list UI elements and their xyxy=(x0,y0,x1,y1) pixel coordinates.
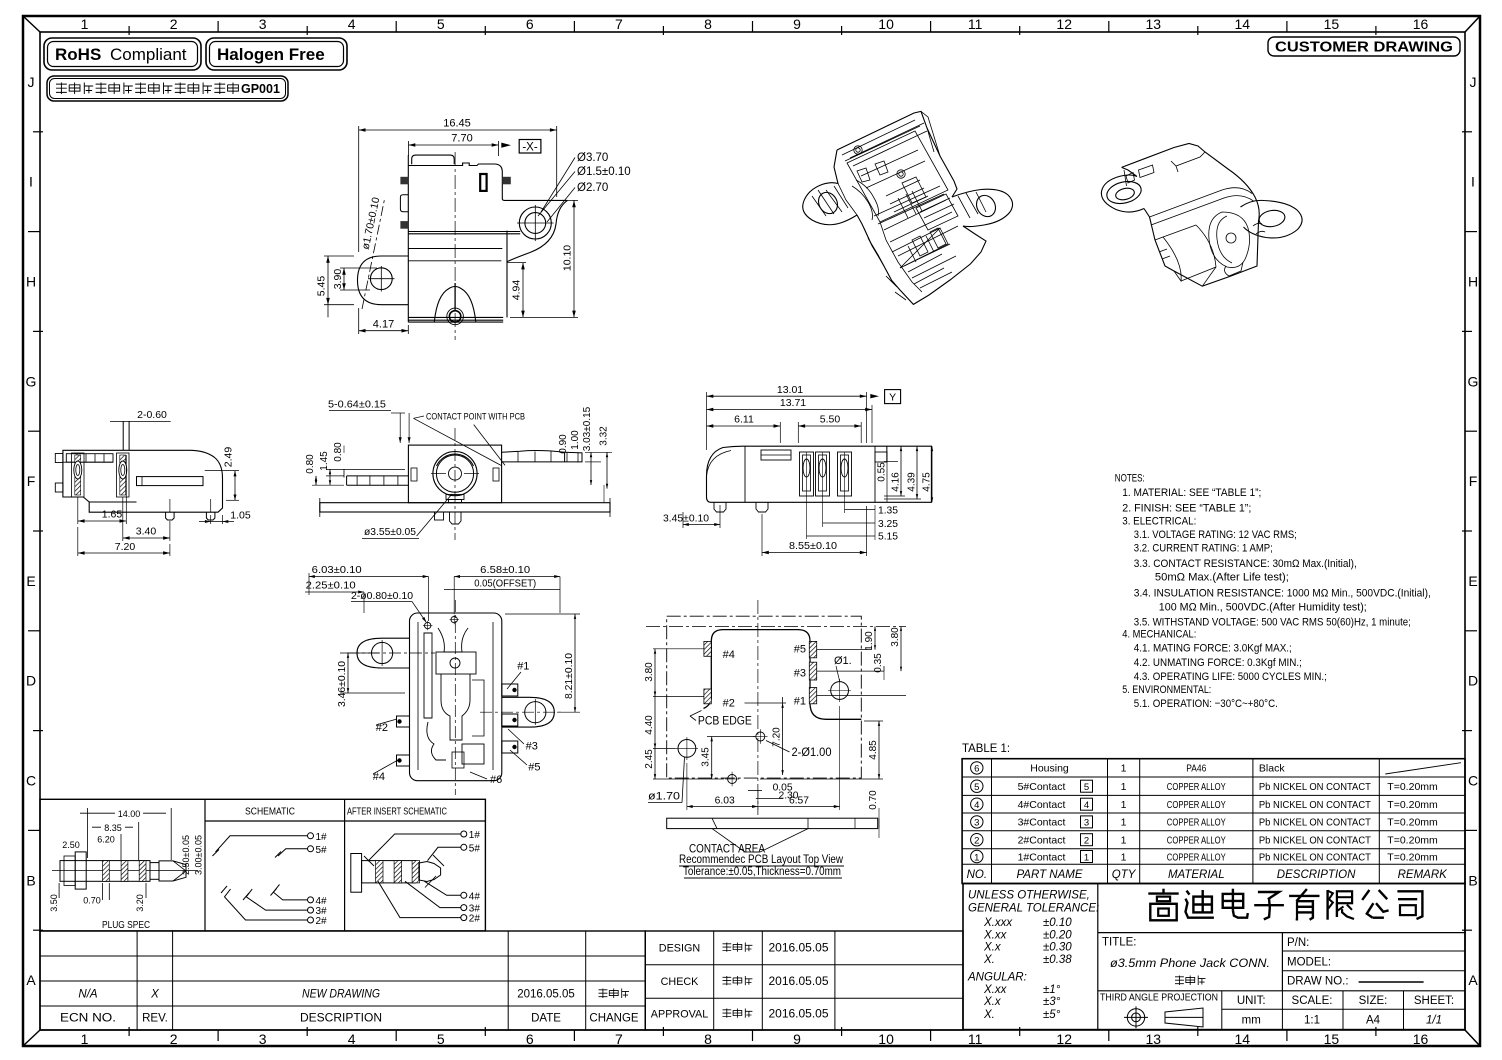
svg-text:#1: #1 xyxy=(517,661,529,673)
svg-text:X.: X. xyxy=(983,1009,995,1021)
svg-text:1: 1 xyxy=(1121,781,1127,793)
svg-text:Housing: Housing xyxy=(1030,763,1069,775)
svg-text:COPPER ALLOY: COPPER ALLOY xyxy=(1167,835,1226,847)
svg-text:4#: 4# xyxy=(469,891,481,902)
svg-text:5#Contact: 5#Contact xyxy=(1018,781,1066,793)
svg-text:9: 9 xyxy=(793,1031,801,1047)
svg-text:SCALE:: SCALE: xyxy=(1292,995,1333,1007)
svg-text:1.45: 1.45 xyxy=(319,451,330,471)
svg-text:8.35: 8.35 xyxy=(104,823,122,833)
svg-text:1. MATERIAL: SEE “TABLE 1”;: 1. MATERIAL: SEE “TABLE 1”; xyxy=(1122,487,1261,499)
svg-text:J: J xyxy=(1470,74,1477,90)
svg-text:Ø2.70: Ø2.70 xyxy=(577,182,608,194)
svg-text:SIZE:: SIZE: xyxy=(1359,995,1388,1007)
svg-text:2. FINISH: SEE “TABLE 1”;: 2. FINISH: SEE “TABLE 1”; xyxy=(1122,503,1251,515)
svg-text:X.xx: X.xx xyxy=(983,930,1008,942)
svg-text:±0.10: ±0.10 xyxy=(1043,917,1072,929)
svg-text:CHECK: CHECK xyxy=(661,976,700,988)
svg-text:Ø3.70: Ø3.70 xyxy=(577,152,608,164)
svg-text:3.80: 3.80 xyxy=(890,627,901,647)
svg-text:1.90: 1.90 xyxy=(864,631,875,651)
svg-text:B: B xyxy=(1468,872,1477,888)
svg-text:3: 3 xyxy=(974,818,979,829)
svg-text:UNIT:: UNIT: xyxy=(1237,995,1266,1007)
svg-text:2#: 2# xyxy=(469,914,481,925)
svg-text:1#: 1# xyxy=(316,832,328,843)
svg-text:6.58±0.10: 6.58±0.10 xyxy=(480,565,530,576)
svg-text:8: 8 xyxy=(704,1031,712,1047)
svg-text:COPPER ALLOY: COPPER ALLOY xyxy=(1167,781,1226,793)
svg-text:C: C xyxy=(1468,773,1478,789)
svg-text:4: 4 xyxy=(1084,800,1089,811)
svg-text:4.1. MATING FORCE: 3.0Kgf MAX: 4.1. MATING FORCE: 3.0Kgf MAX.; xyxy=(1134,642,1292,654)
svg-text:7: 7 xyxy=(615,1031,623,1047)
svg-text:Compliant: Compliant xyxy=(110,45,187,64)
svg-text:GENERAL TOLERANCE:: GENERAL TOLERANCE: xyxy=(968,903,1099,915)
svg-text:3.25: 3.25 xyxy=(878,519,898,530)
svg-text:1:1: 1:1 xyxy=(1304,1015,1320,1027)
svg-text:3.45±0.10: 3.45±0.10 xyxy=(663,513,709,524)
svg-text:T=0.20mm: T=0.20mm xyxy=(1387,817,1438,829)
svg-text:3.80: 3.80 xyxy=(644,662,655,682)
svg-text:NO.: NO. xyxy=(967,869,987,881)
svg-text:RoHS: RoHS xyxy=(55,45,101,64)
svg-text:4.40: 4.40 xyxy=(644,715,655,735)
svg-text:Pb NICKEL ON CONTACT: Pb NICKEL ON CONTACT xyxy=(1259,817,1372,829)
svg-text:T=0.20mm: T=0.20mm xyxy=(1387,781,1438,793)
svg-text:±0.38: ±0.38 xyxy=(1043,954,1072,966)
svg-text:2.50±0.05: 2.50±0.05 xyxy=(181,835,191,875)
svg-text:2.50: 2.50 xyxy=(62,840,80,850)
svg-text:13: 13 xyxy=(1146,1031,1162,1047)
svg-text:F: F xyxy=(27,473,36,489)
svg-text:CHANGE: CHANGE xyxy=(589,1013,639,1025)
svg-text:5: 5 xyxy=(437,1031,445,1047)
svg-text:5: 5 xyxy=(1084,782,1089,793)
svg-text:PA46: PA46 xyxy=(1186,763,1206,775)
svg-text:G: G xyxy=(26,373,37,389)
svg-text:3.3. CONTACT RESISTANCE: 30mΩ: 3.3. CONTACT RESISTANCE: 30mΩ Max.(Initi… xyxy=(1134,558,1357,570)
svg-text:0.35: 0.35 xyxy=(873,653,884,673)
svg-text:15: 15 xyxy=(1324,1031,1340,1047)
svg-text:DESCRIPTION: DESCRIPTION xyxy=(300,1013,382,1025)
svg-text:G: G xyxy=(1468,373,1479,389)
svg-text:1: 1 xyxy=(1121,851,1127,863)
svg-text:X.x: X.x xyxy=(983,942,1002,954)
svg-text:±3°: ±3° xyxy=(1043,996,1061,1008)
svg-text:2016.05.05: 2016.05.05 xyxy=(768,974,828,988)
svg-text:TITLE:: TITLE: xyxy=(1102,937,1137,949)
svg-text:2: 2 xyxy=(170,1031,178,1047)
svg-text:T=0.20mm: T=0.20mm xyxy=(1387,835,1438,847)
svg-text:4: 4 xyxy=(348,16,356,32)
svg-text:13.71: 13.71 xyxy=(780,397,806,409)
svg-text:APPROVAL: APPROVAL xyxy=(651,1009,708,1021)
svg-text:H: H xyxy=(1468,274,1478,290)
svg-text:3.90: 3.90 xyxy=(332,269,344,290)
svg-text:12: 12 xyxy=(1056,16,1072,32)
svg-text:0.80: 0.80 xyxy=(333,442,344,462)
svg-text:7.70: 7.70 xyxy=(451,133,472,145)
svg-text:Ø1.: Ø1. xyxy=(834,655,852,667)
svg-text:REMARK: REMARK xyxy=(1398,869,1449,881)
svg-text:6: 6 xyxy=(526,1031,534,1047)
svg-text:14.00: 14.00 xyxy=(118,809,141,819)
svg-text:SHEET:: SHEET: xyxy=(1414,995,1454,1007)
svg-text:4.3. OPERATING LIFE: 5000 CYC: 4.3. OPERATING LIFE: 5000 CYCLES MIN.; xyxy=(1134,671,1327,683)
svg-text:3.00±0.05: 3.00±0.05 xyxy=(194,835,204,875)
svg-text:DRAW NO.:: DRAW NO.: xyxy=(1287,976,1349,988)
svg-text:1: 1 xyxy=(1121,799,1127,811)
svg-text:3: 3 xyxy=(259,16,267,32)
svg-text:7.20: 7.20 xyxy=(771,727,782,747)
svg-text:2: 2 xyxy=(1084,836,1089,847)
svg-text:16.45: 16.45 xyxy=(443,118,471,130)
svg-text:X.xx: X.xx xyxy=(983,984,1008,996)
svg-text:1: 1 xyxy=(1084,852,1089,863)
svg-text:2016.05.05: 2016.05.05 xyxy=(517,989,575,1001)
svg-text:ø1.70: ø1.70 xyxy=(648,791,680,803)
svg-text:THIRD ANGLE PROJECTION: THIRD ANGLE PROJECTION xyxy=(1100,993,1218,1004)
svg-text:UNLESS OTHERWISE,: UNLESS OTHERWISE, xyxy=(968,890,1090,902)
svg-text:14: 14 xyxy=(1235,16,1251,32)
svg-text:7: 7 xyxy=(615,16,623,32)
svg-text:4.2. UNMATING FORCE: 0.3Kgf M: 4.2. UNMATING FORCE: 0.3Kgf MIN.; xyxy=(1134,657,1302,669)
svg-text:7.20: 7.20 xyxy=(115,541,136,553)
svg-text:ECN NO.: ECN NO. xyxy=(60,1013,116,1025)
svg-text:5: 5 xyxy=(437,16,445,32)
svg-text:#1: #1 xyxy=(794,695,806,707)
svg-text:10: 10 xyxy=(878,1031,894,1047)
svg-text:6.03: 6.03 xyxy=(715,795,735,806)
svg-text:ø3.5mm Phone Jack CONN.: ø3.5mm Phone Jack CONN. xyxy=(1110,958,1270,970)
svg-text:4: 4 xyxy=(974,800,979,811)
svg-text:#5: #5 xyxy=(528,762,540,774)
svg-text:11: 11 xyxy=(968,16,983,32)
svg-text:3: 3 xyxy=(259,1031,267,1047)
svg-text:10: 10 xyxy=(878,16,894,32)
svg-text:4.85: 4.85 xyxy=(868,740,879,760)
svg-text:8: 8 xyxy=(704,16,712,32)
svg-text:X.x: X.x xyxy=(983,996,1002,1008)
svg-text:0.90: 0.90 xyxy=(558,434,569,454)
svg-text:1: 1 xyxy=(81,1031,89,1047)
svg-text:Pb NICKEL ON CONTACT: Pb NICKEL ON CONTACT xyxy=(1259,799,1372,811)
svg-text:Pb NICKEL ON CONTACT: Pb NICKEL ON CONTACT xyxy=(1259,781,1372,793)
svg-text:3#Contact: 3#Contact xyxy=(1018,817,1066,829)
svg-text:-X-: -X- xyxy=(522,141,538,153)
svg-text:6.11: 6.11 xyxy=(734,414,754,426)
svg-text:Black: Black xyxy=(1259,763,1285,775)
svg-text:I: I xyxy=(29,174,33,190)
svg-text:9: 9 xyxy=(793,16,801,32)
svg-text:4.94: 4.94 xyxy=(511,280,523,301)
svg-text:E: E xyxy=(1468,573,1477,589)
svg-text:8.55±0.10: 8.55±0.10 xyxy=(789,541,837,552)
svg-text:X: X xyxy=(150,989,160,1001)
svg-text:QTY: QTY xyxy=(1112,869,1137,881)
svg-text:1: 1 xyxy=(1121,817,1127,829)
svg-text:6: 6 xyxy=(974,764,979,775)
svg-text:6: 6 xyxy=(526,16,534,32)
svg-text:8.21±0.10: 8.21±0.10 xyxy=(564,653,575,699)
svg-text:14: 14 xyxy=(1235,1031,1251,1047)
svg-text:4: 4 xyxy=(348,1031,356,1047)
svg-text:2.49: 2.49 xyxy=(223,447,235,468)
svg-text:NOTES:: NOTES: xyxy=(1115,473,1145,485)
svg-text:2.25±0.10: 2.25±0.10 xyxy=(306,581,356,592)
svg-text:MODEL:: MODEL: xyxy=(1287,957,1331,969)
svg-text:4.75: 4.75 xyxy=(922,472,933,492)
svg-text:3.2. CURRENT RATING: 1 AMP;: 3.2. CURRENT RATING: 1 AMP; xyxy=(1134,543,1273,555)
svg-text:1/1: 1/1 xyxy=(1426,1015,1442,1027)
svg-text:Ø1.5±0.10: Ø1.5±0.10 xyxy=(577,166,631,178)
svg-text:P/N:: P/N: xyxy=(1287,937,1309,949)
svg-text:2#: 2# xyxy=(316,916,328,927)
svg-text:±1°: ±1° xyxy=(1043,984,1061,996)
svg-text:DESIGN: DESIGN xyxy=(659,943,700,955)
svg-text:A4: A4 xyxy=(1366,1015,1381,1027)
svg-text:3.50: 3.50 xyxy=(49,894,59,912)
svg-text:5.15: 5.15 xyxy=(878,532,898,543)
svg-text:1: 1 xyxy=(1121,763,1127,775)
svg-text:COPPER ALLOY: COPPER ALLOY xyxy=(1167,817,1226,829)
svg-text:13.01: 13.01 xyxy=(777,384,803,396)
svg-text:COPPER ALLOY: COPPER ALLOY xyxy=(1167,851,1226,863)
svg-text:16: 16 xyxy=(1413,16,1429,32)
svg-text:Pb NICKEL ON CONTACT: Pb NICKEL ON CONTACT xyxy=(1259,835,1372,847)
svg-text:I: I xyxy=(1471,174,1475,190)
svg-text:J: J xyxy=(28,74,35,90)
svg-text:2016.05.05: 2016.05.05 xyxy=(768,1007,828,1021)
svg-text:X.: X. xyxy=(983,954,995,966)
svg-text:1: 1 xyxy=(1121,835,1127,847)
svg-text:5.1. OPERATION: −30°C~+80°C.: 5.1. OPERATION: −30°C~+80°C. xyxy=(1134,698,1278,710)
svg-text:1: 1 xyxy=(974,852,979,863)
svg-text:E: E xyxy=(26,573,35,589)
svg-text:6.57: 6.57 xyxy=(789,795,809,806)
svg-text:3. ELECTRICAL:: 3. ELECTRICAL: xyxy=(1122,516,1196,528)
svg-text:D: D xyxy=(1468,673,1478,689)
svg-text:4.17: 4.17 xyxy=(373,319,394,331)
svg-text:TABLE 1:: TABLE 1: xyxy=(962,741,1010,755)
svg-text:0.05(OFFSET): 0.05(OFFSET) xyxy=(474,578,536,589)
svg-text:3.46±0.10: 3.46±0.10 xyxy=(337,661,348,707)
svg-text:DESCRIPTION: DESCRIPTION xyxy=(1277,869,1356,881)
svg-text:Pb NICKEL ON CONTACT: Pb NICKEL ON CONTACT xyxy=(1259,851,1372,863)
svg-text:5.45: 5.45 xyxy=(316,276,328,297)
svg-text:6.03±0.10: 6.03±0.10 xyxy=(312,565,362,576)
svg-text:COPPER ALLOY: COPPER ALLOY xyxy=(1167,799,1226,811)
svg-text:2#Contact: 2#Contact xyxy=(1018,835,1066,847)
svg-text:X.xxx: X.xxx xyxy=(983,917,1013,929)
svg-text:GP001: GP001 xyxy=(241,82,280,96)
svg-text:3.32: 3.32 xyxy=(599,426,610,446)
svg-text:±5°: ±5° xyxy=(1043,1009,1061,1021)
svg-text:ANGULAR:: ANGULAR: xyxy=(967,971,1027,983)
svg-text:16: 16 xyxy=(1413,1031,1429,1047)
svg-text:#3: #3 xyxy=(526,741,538,753)
svg-text:3.20: 3.20 xyxy=(135,894,145,912)
svg-text:2016.05.05: 2016.05.05 xyxy=(768,941,828,955)
svg-text:1.65: 1.65 xyxy=(102,509,123,521)
svg-text:11: 11 xyxy=(968,1031,983,1047)
svg-text:1.00: 1.00 xyxy=(570,430,581,450)
svg-text:B: B xyxy=(26,872,35,888)
svg-text:D: D xyxy=(26,673,36,689)
svg-text:REV.: REV. xyxy=(142,1013,168,1025)
svg-text:2: 2 xyxy=(974,836,979,847)
svg-text:1.05: 1.05 xyxy=(230,509,251,521)
svg-text:#6: #6 xyxy=(490,774,502,786)
svg-text:N/A: N/A xyxy=(78,989,98,1001)
svg-text:1: 1 xyxy=(81,16,89,32)
svg-text:0.70: 0.70 xyxy=(83,896,101,906)
svg-text:5.50: 5.50 xyxy=(820,414,841,426)
svg-text:100 MΩ Min., 500VDC.(After Hum: 100 MΩ Min., 500VDC.(After Humidity test… xyxy=(1159,602,1367,614)
svg-text:0.70: 0.70 xyxy=(868,790,879,810)
svg-text:12: 12 xyxy=(1056,1031,1072,1047)
svg-text:T=0.20mm: T=0.20mm xyxy=(1387,851,1438,863)
svg-text:13: 13 xyxy=(1146,16,1162,32)
svg-text:#2: #2 xyxy=(376,722,388,734)
svg-text:±0.30: ±0.30 xyxy=(1043,942,1072,954)
svg-text:50mΩ Max.(After Life test);: 50mΩ Max.(After Life test); xyxy=(1155,571,1289,583)
svg-text:0.55: 0.55 xyxy=(877,462,888,482)
svg-text:AFTER INSERT SCHEMATIC: AFTER INSERT SCHEMATIC xyxy=(347,807,447,818)
svg-text:6.20: 6.20 xyxy=(97,835,115,845)
svg-text:#3: #3 xyxy=(794,668,806,680)
svg-text:DATE: DATE xyxy=(531,1013,561,1025)
svg-text:CONTACT POINT WITH PCB: CONTACT POINT WITH PCB xyxy=(426,411,525,422)
svg-text:PCB EDGE: PCB EDGE xyxy=(698,716,752,728)
svg-text:0.80: 0.80 xyxy=(305,454,316,474)
svg-text:5#: 5# xyxy=(316,845,328,856)
svg-text:CUSTOMER DRAWING: CUSTOMER DRAWING xyxy=(1275,40,1453,56)
svg-text:T=0.20mm: T=0.20mm xyxy=(1387,799,1438,811)
svg-text:PART NAME: PART NAME xyxy=(1016,869,1082,881)
svg-text:#5: #5 xyxy=(794,644,806,656)
svg-text:3.03±0.15: 3.03±0.15 xyxy=(582,406,593,451)
svg-text:A: A xyxy=(1468,972,1478,988)
svg-text:A: A xyxy=(26,972,36,988)
svg-text:#2: #2 xyxy=(723,697,735,709)
svg-text:2.45: 2.45 xyxy=(644,749,655,769)
svg-text:1#: 1# xyxy=(469,830,481,841)
svg-text:MATERIAL: MATERIAL xyxy=(1168,869,1225,881)
svg-text:3.4. INSULATION RESISTANCE: 1: 3.4. INSULATION RESISTANCE: 1000 MΩ Min.… xyxy=(1134,587,1431,599)
svg-text:2: 2 xyxy=(170,16,178,32)
svg-text:H: H xyxy=(26,274,36,290)
svg-text:4. MECHANICAL:: 4. MECHANICAL: xyxy=(1122,629,1196,641)
svg-text:3.40: 3.40 xyxy=(136,526,157,538)
svg-text:3.1. VOLTAGE RATING: 12 VAC R: 3.1. VOLTAGE RATING: 12 VAC RMS; xyxy=(1134,529,1297,541)
svg-text:5#: 5# xyxy=(469,843,481,854)
svg-text:ø3.55±0.05: ø3.55±0.05 xyxy=(364,526,416,538)
svg-text:5-0.64±0.15: 5-0.64±0.15 xyxy=(328,399,386,411)
svg-text:3: 3 xyxy=(1084,818,1089,829)
svg-text:C: C xyxy=(26,773,36,789)
svg-text:Recommendec PCB Layout Top Vie: Recommendec PCB Layout Top View xyxy=(679,854,844,866)
svg-text:3.5. WITHSTAND VOLTAGE: 500 V: 3.5. WITHSTAND VOLTAGE: 500 VAC RMS 50(6… xyxy=(1134,617,1411,629)
svg-text:4#Contact: 4#Contact xyxy=(1018,799,1066,811)
svg-text:5: 5 xyxy=(974,782,979,793)
svg-text:±0.20: ±0.20 xyxy=(1043,930,1072,942)
svg-text:Halogen Free: Halogen Free xyxy=(217,45,325,64)
svg-text:4.39: 4.39 xyxy=(907,472,918,492)
svg-text:1.35: 1.35 xyxy=(878,505,898,516)
svg-text:5. ENVIRONMENTAL:: 5. ENVIRONMENTAL: xyxy=(1122,684,1211,696)
svg-text:mm: mm xyxy=(1242,1015,1261,1027)
svg-text:SCHEMATIC: SCHEMATIC xyxy=(245,807,295,818)
svg-text:2-0.60: 2-0.60 xyxy=(137,409,167,421)
svg-text:F: F xyxy=(1469,473,1478,489)
svg-text:2-Ø1.00: 2-Ø1.00 xyxy=(792,747,832,759)
svg-text:4.16: 4.16 xyxy=(891,472,902,492)
svg-text:#4: #4 xyxy=(723,649,735,661)
svg-text:15: 15 xyxy=(1324,16,1340,32)
svg-text:NEW DRAWING: NEW DRAWING xyxy=(302,989,380,1001)
svg-text:PLUG SPEC: PLUG SPEC xyxy=(102,920,150,931)
svg-text:10.10: 10.10 xyxy=(562,245,574,271)
svg-text:Y: Y xyxy=(889,391,896,403)
svg-text:Tolerance:±0.05,Thickness=0.70: Tolerance:±0.05,Thickness=0.70mm xyxy=(683,866,841,878)
svg-text:3.45: 3.45 xyxy=(701,747,712,767)
svg-text:1#Contact: 1#Contact xyxy=(1018,851,1066,863)
